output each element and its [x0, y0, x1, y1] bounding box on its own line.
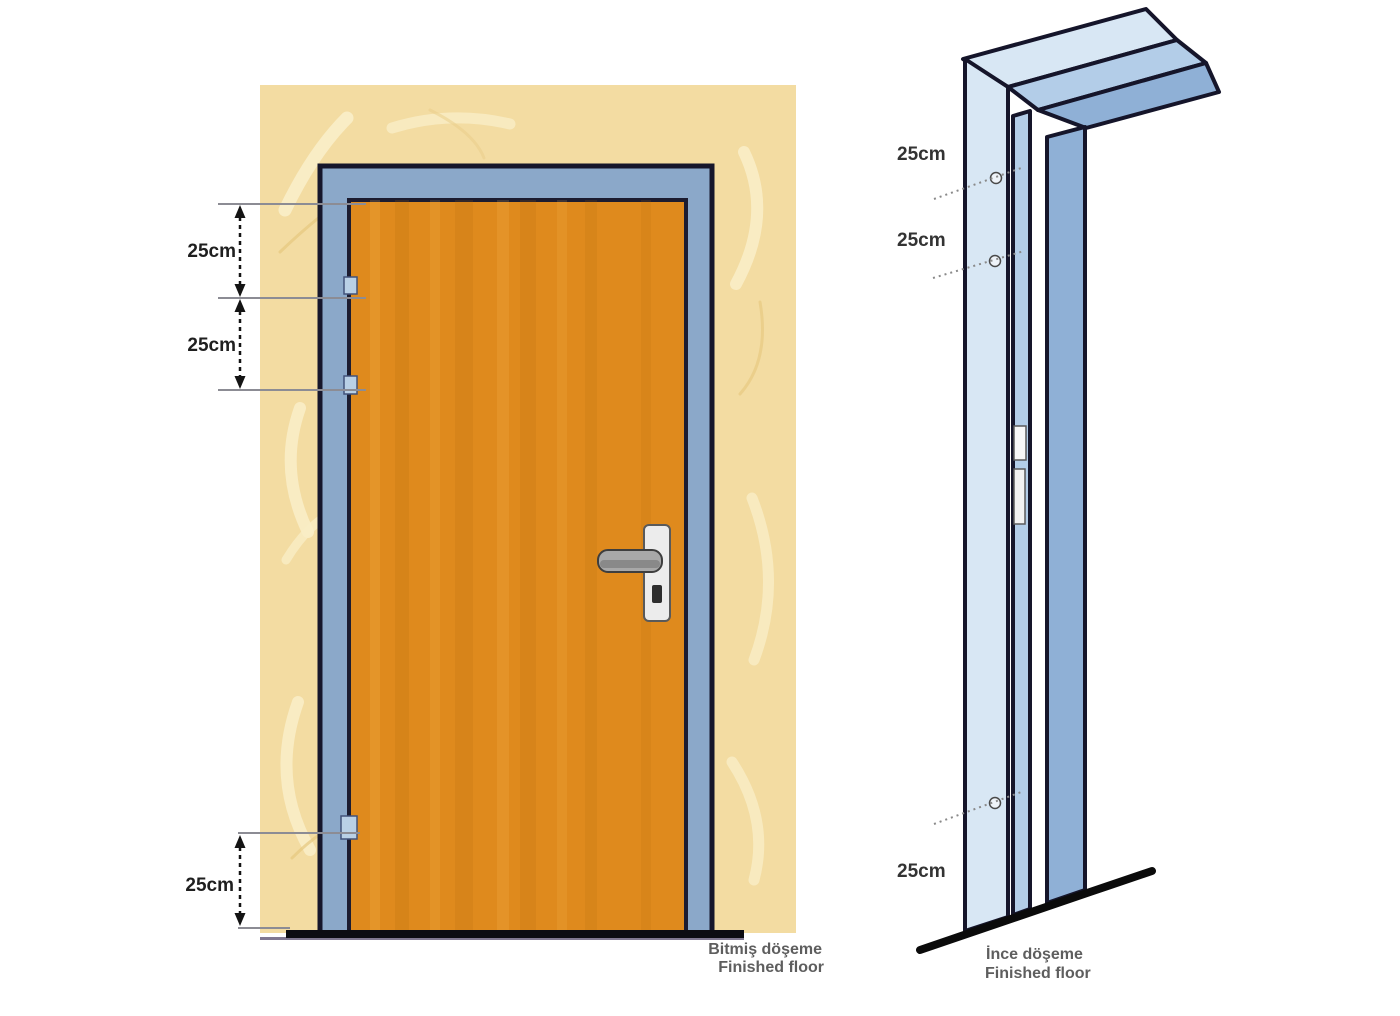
- arrowhead-icon: [235, 913, 246, 926]
- dim-label-persp-top: 25cm: [897, 144, 946, 165]
- arrowhead-icon: [235, 835, 246, 848]
- lever-shadow: [600, 560, 660, 568]
- frame-perspective: [963, 9, 1219, 931]
- arrowhead-icon: [235, 284, 246, 297]
- dim-label-persp-bottom: 25cm: [897, 861, 946, 882]
- keyhole-icon: [652, 585, 662, 603]
- dim-label-top: 25cm: [187, 241, 236, 262]
- hinge-middle-icon: [344, 376, 357, 394]
- frame-jamb-face-3: [1047, 127, 1085, 903]
- dim-label-bottom: 25cm: [185, 875, 234, 896]
- arrowhead-icon: [235, 299, 246, 312]
- floor-caption-persp-en: Finished floor: [985, 965, 1091, 982]
- hinge-bottom-icon: [341, 816, 357, 839]
- dimension-arrows-front: [235, 205, 246, 926]
- dim-label-persp-middle: 25cm: [897, 230, 946, 251]
- hinge-top-icon: [344, 277, 357, 294]
- floor-caption-persp-tr: İnce döşeme: [986, 945, 1083, 963]
- dim-label-middle: 25cm: [187, 335, 236, 356]
- floor-line-perspective: [920, 871, 1152, 950]
- arrowhead-icon: [235, 376, 246, 389]
- floor-caption-front-en: Finished floor: [718, 959, 824, 976]
- frame-jamb-face-1: [965, 59, 1008, 931]
- floor-caption-front-tr: Bitmiş döşeme: [708, 941, 822, 958]
- floor-line-front: [286, 930, 744, 938]
- door-installation-diagram: 25cm 25cm 25cm Bitmiş döşeme Finished fl…: [0, 0, 1400, 1016]
- arrowhead-icon: [235, 205, 246, 218]
- strike-plate-latch: [1014, 426, 1026, 460]
- diagram-svg: 25cm 25cm 25cm Bitmiş döşeme Finished fl…: [0, 0, 1400, 1016]
- strike-plate-deadbolt: [1014, 469, 1025, 524]
